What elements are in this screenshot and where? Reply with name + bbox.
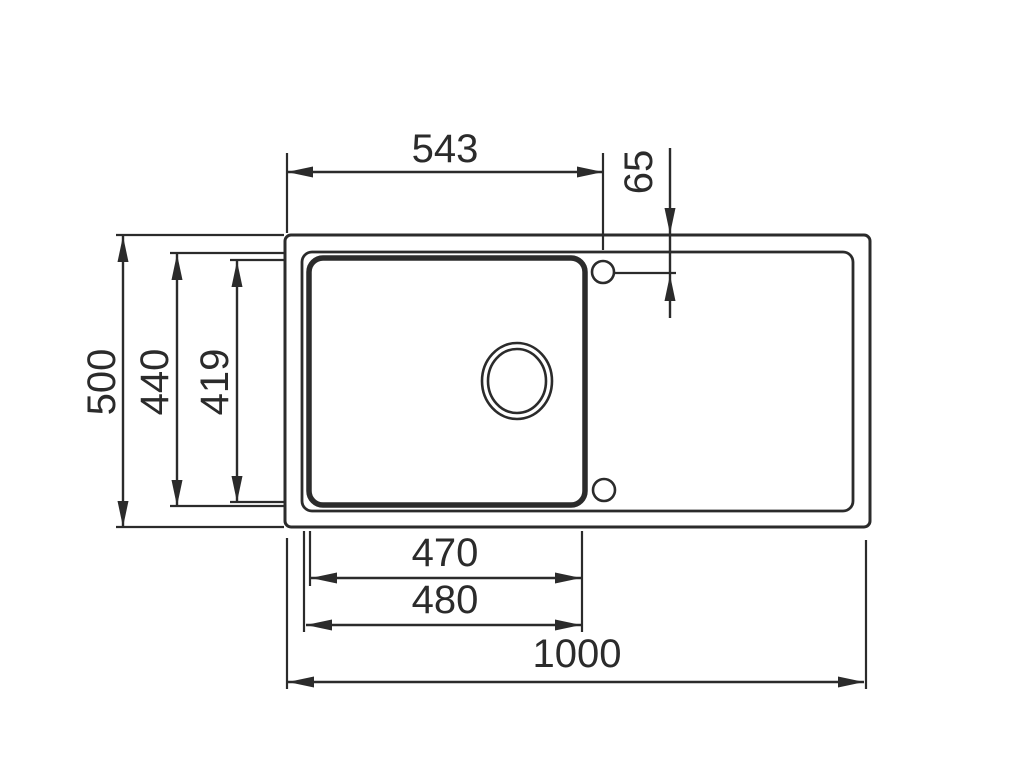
dim-470-arrowhead <box>311 573 337 584</box>
dim-65-arrowhead <box>665 275 676 301</box>
drain-outer-ring <box>482 343 552 419</box>
dim-1000-arrowhead <box>838 677 864 688</box>
dim-543-arrowhead <box>577 167 603 178</box>
dim-500-arrowhead <box>118 501 129 527</box>
dim-1000-label: 1000 <box>533 632 622 676</box>
sink-outer-edge <box>285 235 870 527</box>
dim-470-label: 470 <box>412 531 479 575</box>
page-background: 543 65 500 440 419 470 480 1000 <box>0 0 1024 768</box>
sink-technical-drawing: 543 65 500 440 419 470 480 1000 <box>0 0 1024 768</box>
dim-480-arrowhead <box>555 620 581 631</box>
dim-419-label: 419 <box>193 349 237 416</box>
dim-480-arrowhead <box>306 620 332 631</box>
basin-outline <box>309 258 585 505</box>
sink-inner-rim <box>302 252 853 511</box>
dim-440-arrowhead <box>172 254 183 280</box>
tap-hole-bottom <box>593 479 615 501</box>
dim-440-label: 440 <box>133 349 177 416</box>
dim-500-label: 500 <box>80 349 124 416</box>
dim-480-label: 480 <box>412 578 479 622</box>
dim-1000-arrowhead <box>288 677 314 688</box>
dim-543-label: 543 <box>412 127 479 171</box>
dim-65-arrowhead <box>665 208 676 234</box>
dim-419-arrowhead <box>232 476 243 502</box>
drain-inner-ring <box>488 349 546 413</box>
dim-419-arrowhead <box>232 261 243 287</box>
dim-470-arrowhead <box>555 573 581 584</box>
dim-500-arrowhead <box>118 236 129 262</box>
dim-440-arrowhead <box>172 480 183 506</box>
tap-hole-top <box>592 261 614 283</box>
dim-543-arrowhead <box>287 167 313 178</box>
dim-65-label: 65 <box>617 150 661 195</box>
